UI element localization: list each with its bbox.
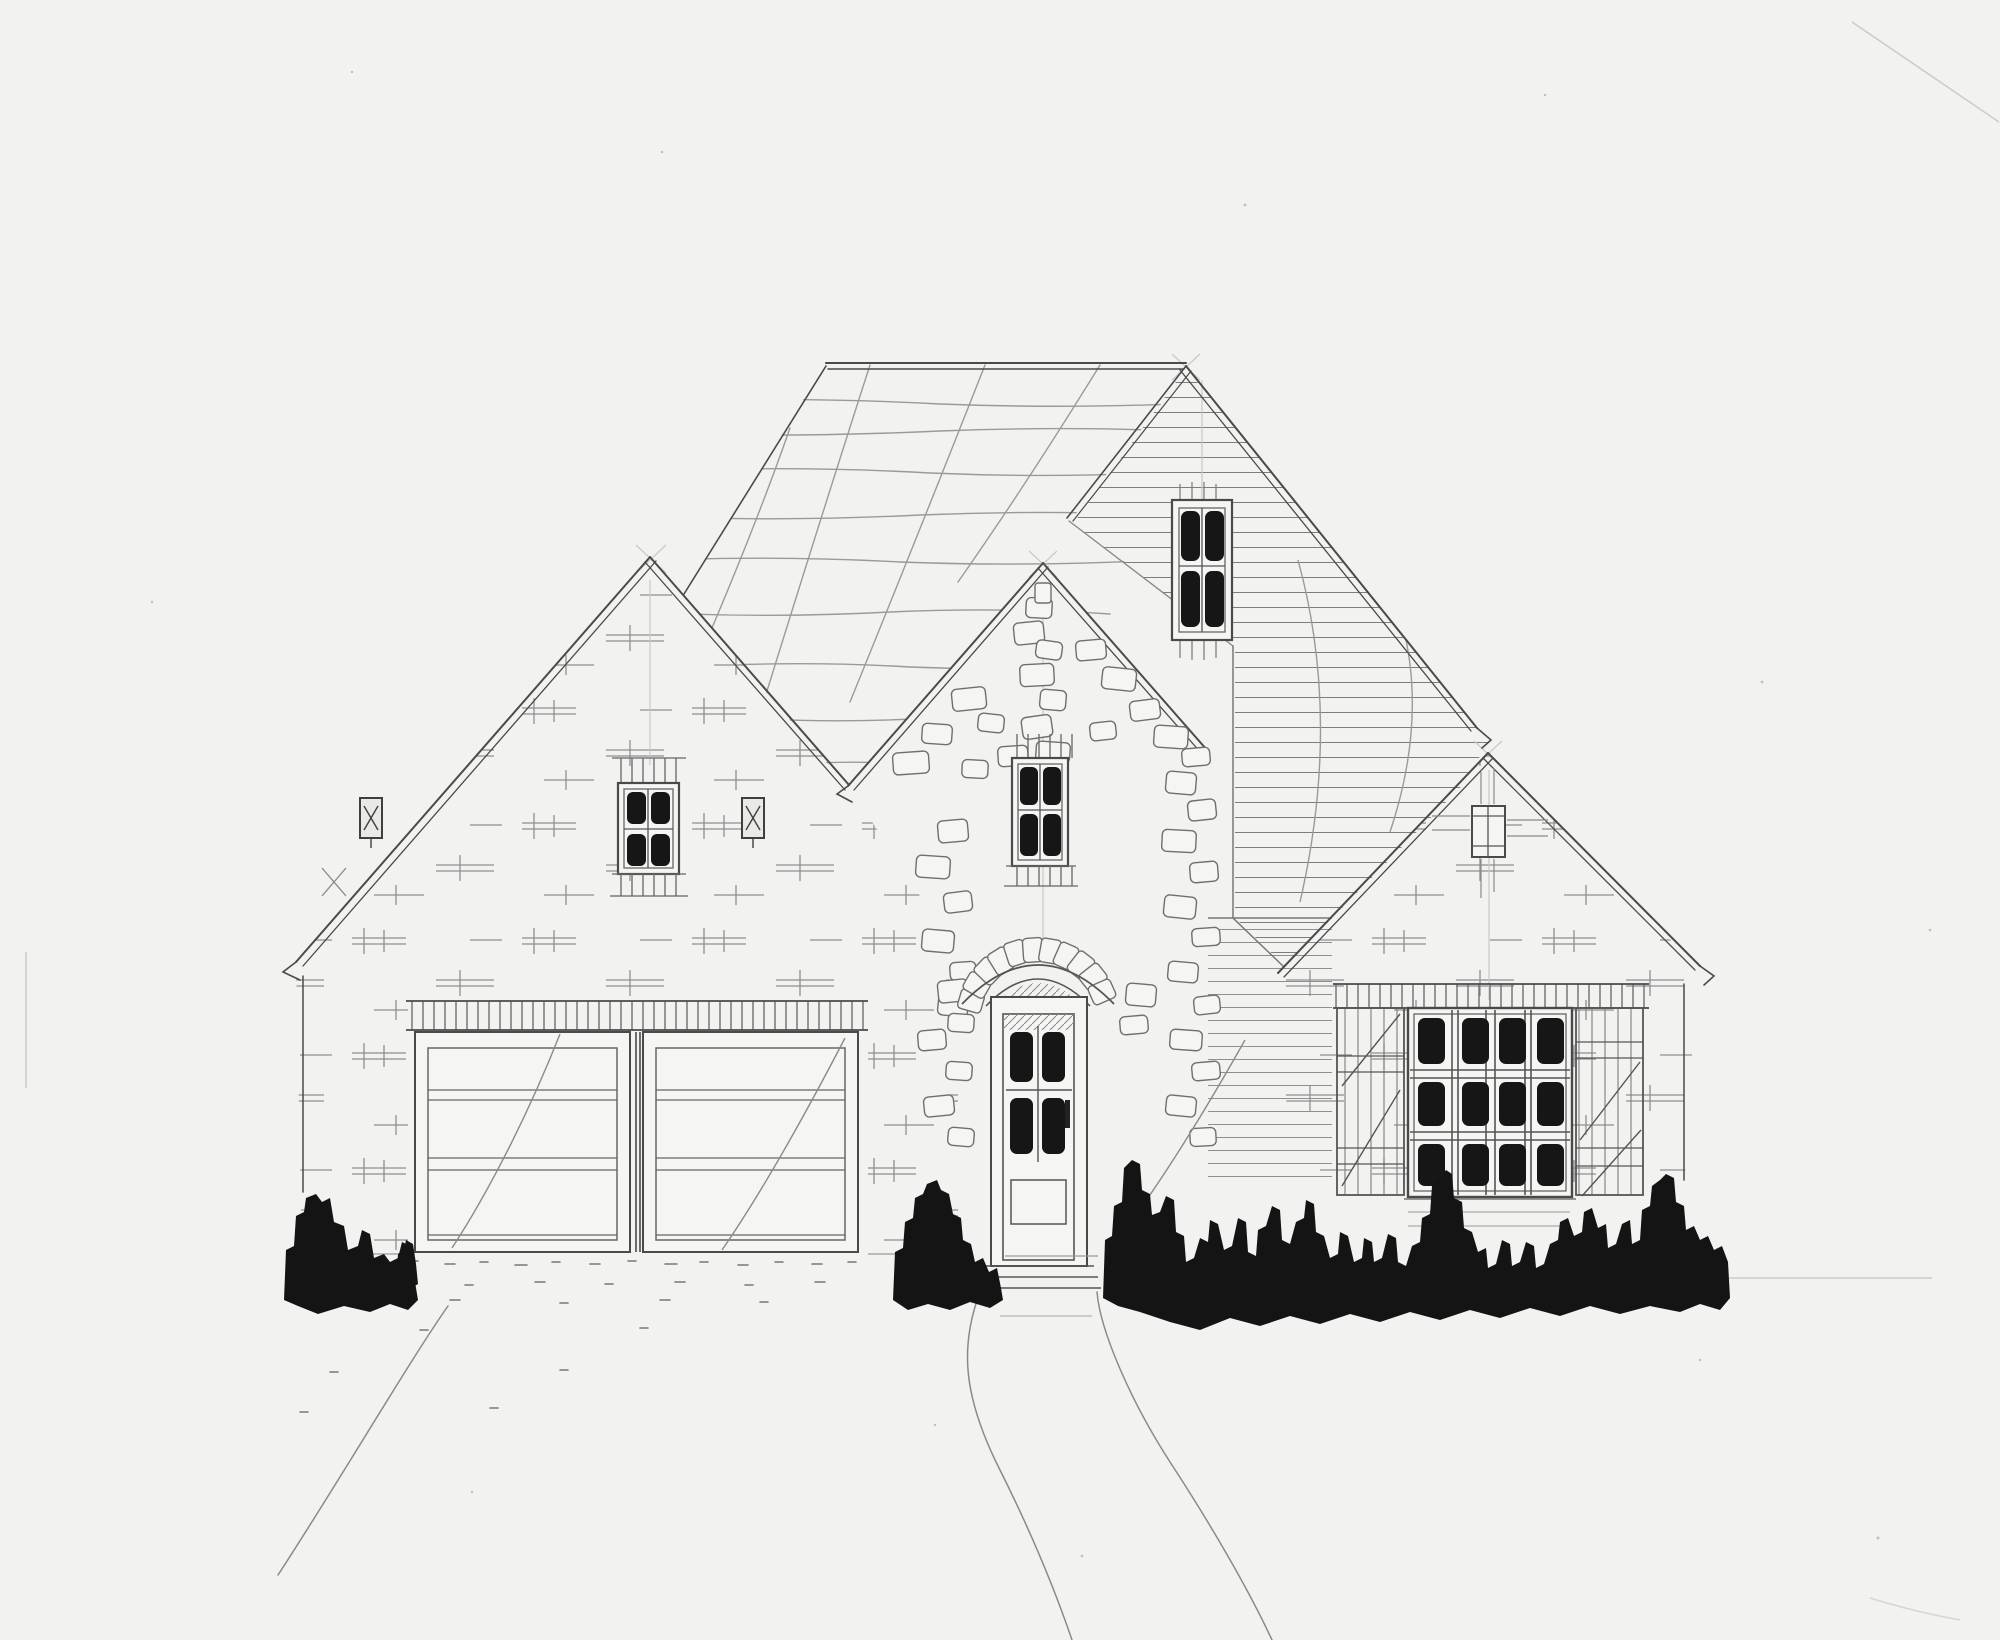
recessed-wall-brick-courses xyxy=(1208,918,1332,1188)
garage-door-left[interactable] xyxy=(415,1032,630,1252)
door-frame xyxy=(991,997,1087,1266)
door-handle[interactable] xyxy=(1065,1100,1070,1128)
left-gable-window xyxy=(610,758,688,896)
left-shutter xyxy=(1337,1008,1404,1195)
elevation-drawing xyxy=(0,0,2000,1640)
center-gable-window xyxy=(1004,734,1078,886)
right-shutter xyxy=(1576,1008,1643,1196)
right-picture-window-assembly xyxy=(1333,984,1649,1226)
right-window-header xyxy=(1333,984,1649,1008)
paper-background xyxy=(0,0,2000,1640)
sketch-sheet xyxy=(0,0,2000,1640)
garage-door-right[interactable] xyxy=(643,1032,858,1252)
garage-header xyxy=(406,1001,868,1030)
rear-gable-window xyxy=(1172,482,1232,660)
